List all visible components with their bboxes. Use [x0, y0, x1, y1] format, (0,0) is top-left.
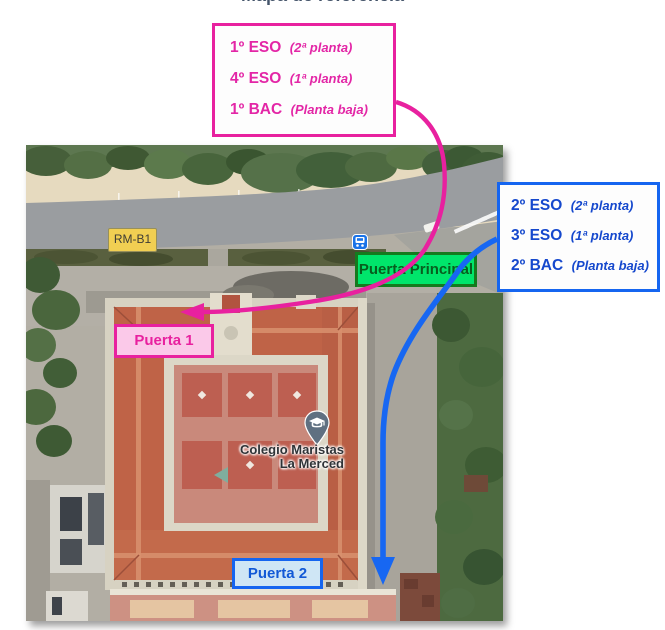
floor-label: (Planta baja) [291, 102, 368, 117]
group-label: 1º BAC [230, 101, 282, 118]
main-entrance-label: Puerta Principal [355, 252, 477, 287]
satellite-imagery [26, 145, 503, 621]
floor-label: (2ª planta) [290, 40, 353, 55]
floor-label: (1ª planta) [571, 228, 634, 243]
door-1-label: Puerta 1 [114, 324, 214, 358]
place-name-line2: La Merced [280, 456, 344, 471]
legend-row: 2º ESO (2ª planta) [500, 197, 657, 215]
bus-stop-icon [352, 234, 368, 250]
group-label: 4º ESO [230, 70, 281, 87]
legend-row: 1º ESO (2ª planta) [215, 39, 393, 57]
floor-label: (Planta baja) [572, 258, 649, 273]
floor-label: (1ª planta) [290, 71, 353, 86]
pink-legend-box: 1º ESO (2ª planta) 4º ESO (1ª planta) 1º… [212, 23, 396, 137]
legend-row: 3º ESO (1ª planta) [500, 227, 657, 245]
legend-row: 2º BAC (Planta baja) [500, 257, 657, 275]
satellite-map[interactable] [26, 145, 503, 621]
legend-row: 1º BAC (Planta baja) [215, 101, 393, 119]
group-label: 3º ESO [511, 227, 562, 244]
group-label: 2º ESO [511, 197, 562, 214]
bus-route-badge: RM-B1 [108, 228, 157, 252]
blue-legend-box: 2º ESO (2ª planta) 3º ESO (1ª planta) 2º… [497, 182, 660, 292]
group-label: 1º ESO [230, 39, 281, 56]
place-name-line1: Colegio Maristas [240, 442, 344, 457]
place-name-label: Colegio Maristas La Merced [236, 443, 344, 471]
group-label: 2º BAC [511, 257, 563, 274]
page-title: Mapa de referencia [0, 0, 645, 6]
legend-row: 4º ESO (1ª planta) [215, 70, 393, 88]
door-2-label: Puerta 2 [232, 558, 323, 589]
floor-label: (2ª planta) [571, 198, 634, 213]
